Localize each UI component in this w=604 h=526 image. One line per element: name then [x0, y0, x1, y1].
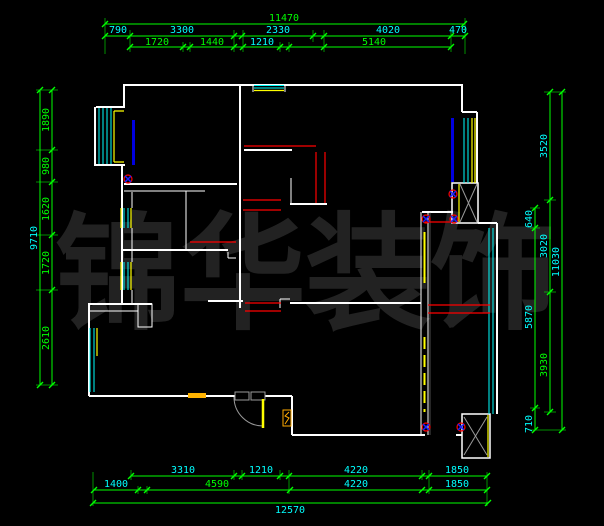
- dim-top-row2-4: 470: [449, 25, 467, 36]
- dim-right-outer-1: 3020: [539, 234, 550, 258]
- dim-bottom-row2-1: 4590: [205, 479, 229, 490]
- dim-top-row3-0: 1720: [145, 37, 169, 48]
- shaft-hatch-icon: [464, 417, 487, 455]
- watermark-char: 华: [180, 201, 306, 348]
- cross-circle-icon: [457, 423, 465, 431]
- dim-top-row2-0: 790: [109, 25, 127, 36]
- dim-bottom-row2-2: 4220: [344, 479, 368, 490]
- cross-circle-icon: [449, 190, 457, 198]
- dim-top-row3-3: 5140: [362, 37, 386, 48]
- dim-top-row2-1: 3300: [170, 25, 194, 36]
- dim-bottom-row2-0: 1400: [104, 479, 128, 490]
- dim-bottom-row1-3: 1850: [445, 465, 469, 476]
- dim-left-1: 980: [41, 157, 52, 175]
- dim-right-inner-2: 710: [524, 415, 535, 433]
- dim-bottom-row1-0: 3310: [171, 465, 195, 476]
- cross-circle-icon: [124, 175, 132, 183]
- right-upper-window: [464, 118, 468, 183]
- bay-window: [99, 108, 111, 164]
- blue-doors: [132, 118, 454, 182]
- dim-left-total: 9710: [29, 226, 40, 250]
- dim-top-row2-2: 2330: [266, 25, 290, 36]
- cross-circle-icon: [422, 423, 430, 431]
- dim-left-0: 1890: [41, 108, 52, 132]
- cad-floor-plan: 锦 华 装 饰: [0, 0, 604, 526]
- door-frame: [251, 392, 265, 400]
- outlet-symbol: [283, 410, 291, 426]
- dim-top-row3-1: 1440: [200, 37, 224, 48]
- dim-bottom-total: 12570: [275, 505, 305, 516]
- watermark-char: 锦: [55, 201, 181, 348]
- dim-right-outer-2: 3930: [539, 353, 550, 377]
- dim-right-inner-0: 640: [524, 210, 535, 228]
- dim-right-total: 11030: [551, 247, 562, 277]
- dim-bottom-row1-1: 1210: [249, 465, 273, 476]
- dim-left-4: 2610: [41, 326, 52, 350]
- dim-left-3: 1720: [41, 251, 52, 275]
- door-frame: [235, 392, 249, 400]
- top-window: [254, 86, 284, 89]
- threshold: [188, 393, 206, 398]
- dim-right-outer-0: 3520: [539, 134, 550, 158]
- dim-top-total: 11470: [269, 13, 299, 24]
- dim-top-row2-3: 4020: [376, 25, 400, 36]
- dim-bottom-row2-3: 1850: [445, 479, 469, 490]
- door-swing-arc: [234, 397, 263, 426]
- dim-left-2: 1620: [41, 197, 52, 221]
- dim-top-row3-2: 1210: [250, 37, 274, 48]
- dim-bottom-row1-2: 4220: [344, 465, 368, 476]
- watermark-char: 装: [305, 201, 431, 348]
- floor-plan-canvas: 锦 华 装 饰: [0, 0, 604, 526]
- dim-right-inner-1: 5870: [524, 305, 535, 329]
